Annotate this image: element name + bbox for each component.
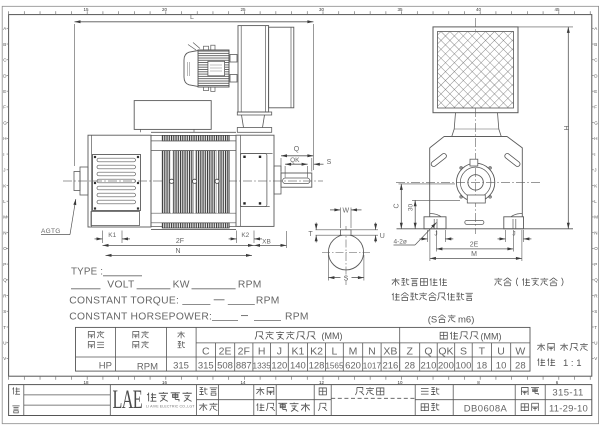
svg-text:XB: XB [383, 346, 397, 358]
svg-text:11-29-10: 11-29-10 [549, 404, 588, 415]
svg-text:J: J [434, 230, 437, 237]
svg-text:4-2ø: 4-2ø [394, 239, 407, 246]
svg-text:LI AIVE ELECTRIC CO.,LGT: LI AIVE ELECTRIC CO.,LGT [146, 405, 195, 409]
svg-text:25: 25 [240, 7, 246, 12]
svg-text:F: F [3, 105, 6, 110]
svg-text:I: I [3, 152, 4, 157]
svg-text:H: H [258, 346, 266, 358]
svg-text:H: H [564, 125, 571, 130]
svg-text:W: W [515, 346, 525, 358]
svg-text:K2: K2 [241, 232, 249, 239]
svg-text:XB: XB [262, 238, 271, 245]
svg-text:C: C [394, 203, 401, 208]
svg-text:m6): m6) [458, 314, 474, 325]
svg-text:620: 620 [345, 361, 361, 372]
svg-text:30: 30 [407, 204, 414, 212]
svg-text:J: J [594, 168, 596, 173]
svg-text:140: 140 [290, 361, 306, 372]
svg-text:40: 40 [476, 7, 482, 12]
svg-text:A: A [3, 26, 6, 31]
svg-text:RPM: RPM [256, 295, 280, 306]
svg-text:K1: K1 [108, 232, 116, 239]
svg-text:J: J [512, 230, 515, 237]
svg-text:128: 128 [309, 361, 325, 372]
svg-text:J: J [277, 346, 282, 358]
svg-text:KW: KW [173, 280, 190, 291]
svg-text:30: 30 [319, 7, 325, 12]
svg-text:K1: K1 [291, 346, 304, 358]
svg-text:S: S [344, 275, 349, 282]
svg-text:45: 45 [554, 7, 560, 12]
svg-text:P: P [3, 262, 6, 267]
svg-text:DB0608A: DB0608A [464, 404, 508, 415]
svg-text:Q: Q [424, 346, 432, 358]
svg-text:U: U [497, 346, 505, 358]
svg-text:A: A [594, 26, 597, 31]
svg-text:508: 508 [217, 361, 233, 372]
svg-text:M: M [349, 346, 358, 358]
svg-text:120: 120 [271, 361, 287, 372]
svg-text:S: S [460, 346, 467, 358]
svg-text:S: S [594, 309, 597, 314]
svg-text:15: 15 [83, 7, 89, 12]
svg-text:U: U [594, 341, 597, 346]
svg-text:HP: HP [99, 361, 112, 372]
svg-text:2E: 2E [219, 346, 232, 358]
svg-text:28: 28 [404, 361, 415, 372]
svg-text:H: H [3, 136, 6, 141]
svg-text:T: T [479, 346, 486, 358]
svg-text:TYPE :: TYPE : [71, 267, 103, 278]
svg-text:K2: K2 [310, 346, 323, 358]
svg-text:H: H [594, 136, 597, 141]
svg-text:N: N [3, 230, 6, 235]
svg-text:210: 210 [421, 361, 437, 372]
svg-text:10: 10 [397, 380, 403, 385]
svg-text:M: M [594, 215, 598, 220]
svg-text:T: T [308, 231, 313, 238]
svg-text:QK: QK [438, 346, 453, 358]
svg-text:O: O [594, 246, 598, 251]
svg-text:V: V [3, 356, 6, 361]
svg-text:N: N [368, 346, 376, 358]
svg-text:L: L [332, 346, 338, 358]
svg-text:(S: (S [428, 314, 438, 325]
svg-text:K: K [594, 183, 597, 188]
svg-text:1335: 1335 [253, 362, 272, 371]
svg-text:AGTG: AGTG [41, 228, 61, 235]
svg-text:E: E [594, 89, 597, 94]
svg-text:RPM: RPM [285, 311, 309, 322]
svg-text:(MM): (MM) [322, 331, 343, 341]
svg-text:L: L [190, 14, 194, 21]
svg-text:S: S [3, 309, 6, 314]
svg-text:F: F [594, 105, 597, 110]
svg-text:12: 12 [319, 380, 325, 385]
svg-text:U: U [380, 233, 385, 240]
svg-text:315-11: 315-11 [552, 387, 583, 398]
svg-text:C: C [202, 346, 210, 358]
svg-text:RPM: RPM [137, 362, 158, 373]
svg-text:K: K [3, 183, 6, 188]
svg-text:VOLT: VOLT [107, 280, 135, 291]
svg-text:1 : 1: 1 : 1 [563, 358, 582, 369]
svg-text:P: P [594, 262, 597, 267]
svg-text:35: 35 [397, 7, 403, 12]
svg-text:N: N [594, 230, 597, 235]
svg-text:216: 216 [382, 361, 398, 372]
svg-text:Q: Q [594, 278, 598, 283]
svg-text:E: E [3, 89, 6, 94]
svg-text:887: 887 [236, 361, 252, 372]
svg-text:1017: 1017 [363, 362, 382, 371]
svg-text:S: S [327, 159, 332, 166]
svg-text:10: 10 [496, 361, 507, 372]
svg-text:18: 18 [83, 380, 89, 385]
svg-text:2F: 2F [238, 346, 250, 358]
svg-text:M: M [471, 251, 477, 258]
svg-text:B: B [3, 42, 6, 47]
svg-text:2F: 2F [176, 238, 184, 245]
svg-text:B: B [594, 42, 597, 47]
svg-text:W: W [342, 208, 349, 215]
svg-text:U: U [3, 341, 6, 346]
svg-text:N: N [175, 248, 180, 255]
svg-text:V: V [594, 356, 597, 361]
svg-text:G: G [594, 120, 598, 125]
svg-text:1565: 1565 [325, 362, 344, 371]
svg-text:QK: QK [290, 157, 300, 164]
svg-text:J: J [3, 168, 5, 173]
svg-text:28: 28 [515, 361, 526, 372]
svg-text:CONSTANT TORQUE:: CONSTANT TORQUE: [69, 295, 179, 306]
svg-text:315: 315 [173, 361, 189, 372]
svg-text:T: T [3, 325, 6, 330]
svg-text:14: 14 [240, 380, 246, 385]
svg-text:16: 16 [162, 380, 168, 385]
svg-text:Z: Z [406, 346, 413, 358]
svg-text:315: 315 [198, 361, 214, 372]
svg-text:18: 18 [477, 361, 488, 372]
svg-text:200: 200 [438, 361, 454, 372]
svg-text:(MM): (MM) [481, 332, 502, 342]
svg-text:RPM: RPM [238, 280, 262, 291]
svg-text:LAE: LAE [113, 385, 143, 414]
svg-text:100: 100 [456, 361, 472, 372]
svg-text:2E: 2E [470, 242, 479, 249]
svg-text:20: 20 [162, 7, 168, 12]
svg-text:CONSTANT HORSEPOWER:: CONSTANT HORSEPOWER: [69, 311, 212, 322]
svg-text:I: I [594, 152, 595, 157]
svg-text:T: T [594, 325, 597, 330]
svg-text:Q: Q [294, 146, 300, 153]
